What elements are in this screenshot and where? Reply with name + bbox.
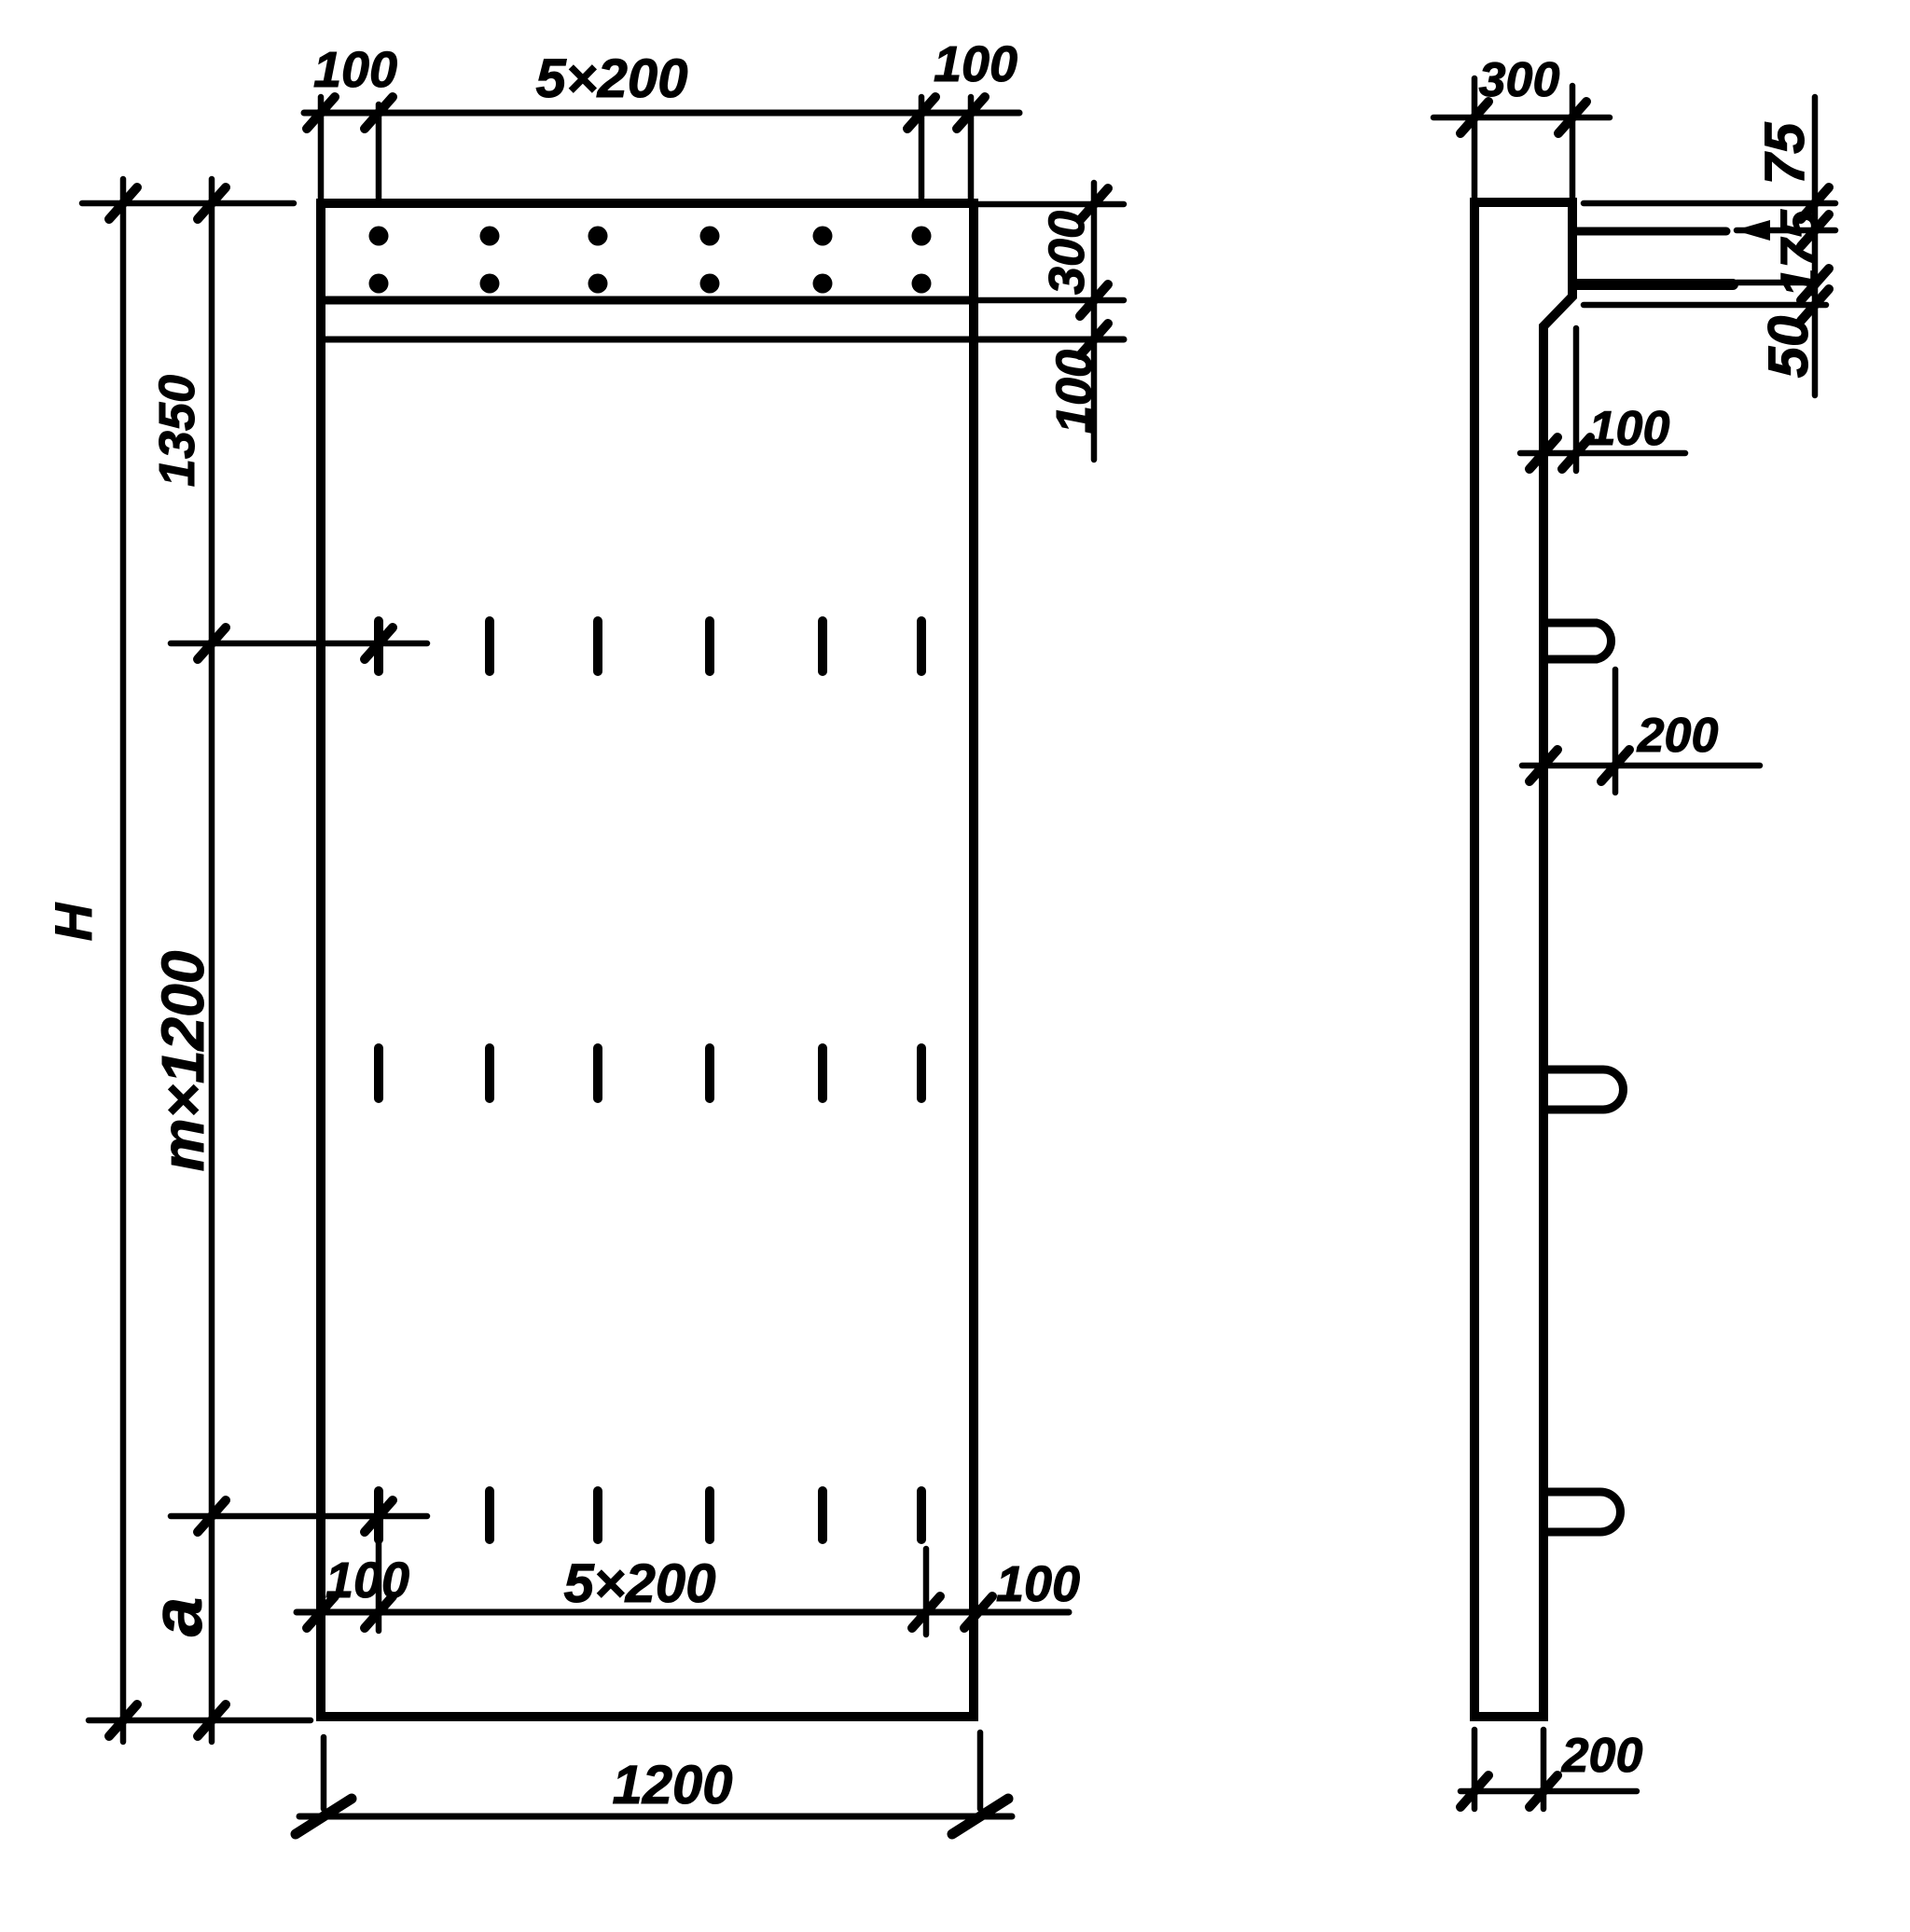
svg-text:m×1200: m×1200 [149, 951, 216, 1172]
svg-text:200: 200 [1637, 709, 1719, 763]
svg-text:300: 300 [1039, 211, 1095, 295]
svg-text:100: 100 [325, 1552, 409, 1608]
svg-text:5×200: 5×200 [536, 48, 688, 109]
svg-text:100: 100 [1046, 350, 1102, 434]
svg-text:100: 100 [934, 36, 1017, 92]
svg-text:a: a [138, 1597, 217, 1636]
svg-text:1350: 1350 [149, 375, 205, 487]
svg-text:100: 100 [313, 42, 397, 98]
svg-text:300: 300 [1479, 53, 1560, 107]
svg-text:100: 100 [996, 1556, 1080, 1612]
svg-text:H: H [44, 902, 103, 941]
svg-text:75: 75 [1753, 121, 1816, 185]
svg-text:175: 175 [1769, 209, 1828, 297]
svg-text:100: 100 [1589, 402, 1670, 456]
svg-text:5×200: 5×200 [564, 1553, 716, 1614]
svg-text:200: 200 [1561, 1729, 1643, 1783]
svg-text:50: 50 [1757, 316, 1820, 379]
svg-text:1200: 1200 [612, 1755, 732, 1815]
